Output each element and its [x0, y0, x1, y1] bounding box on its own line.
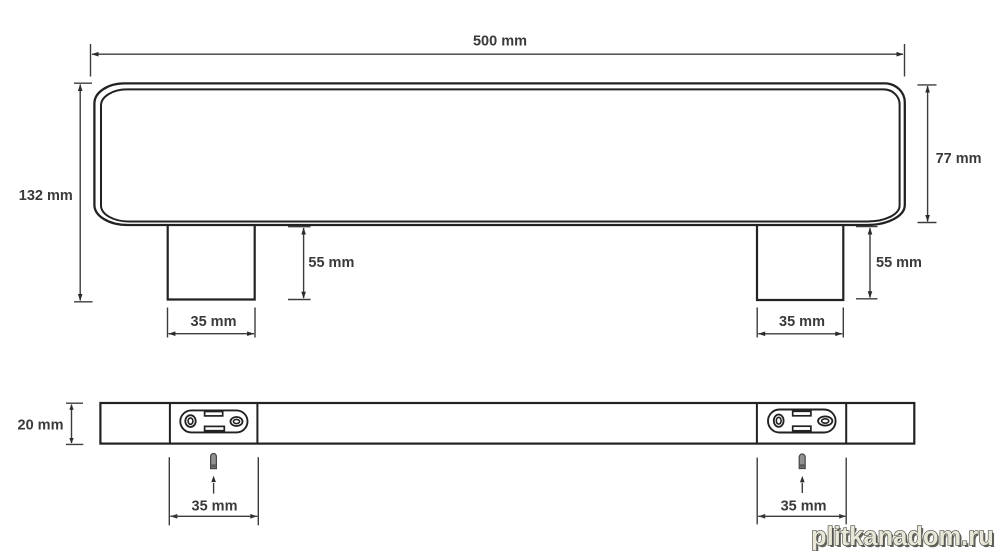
svg-text:500 mm: 500 mm — [473, 34, 527, 50]
svg-text:55 mm: 55 mm — [876, 255, 922, 271]
svg-text:35 mm: 35 mm — [779, 314, 825, 330]
svg-text:plitkanadom.ru: plitkanadom.ru — [811, 523, 994, 551]
svg-text:132 mm: 132 mm — [19, 188, 73, 204]
svg-text:35 mm: 35 mm — [781, 499, 827, 515]
svg-text:77 mm: 77 mm — [936, 151, 982, 167]
svg-text:20 mm: 20 mm — [18, 418, 64, 434]
svg-text:35 mm: 35 mm — [192, 499, 238, 515]
svg-text:55 mm: 55 mm — [308, 255, 354, 271]
svg-text:35 mm: 35 mm — [191, 314, 237, 330]
